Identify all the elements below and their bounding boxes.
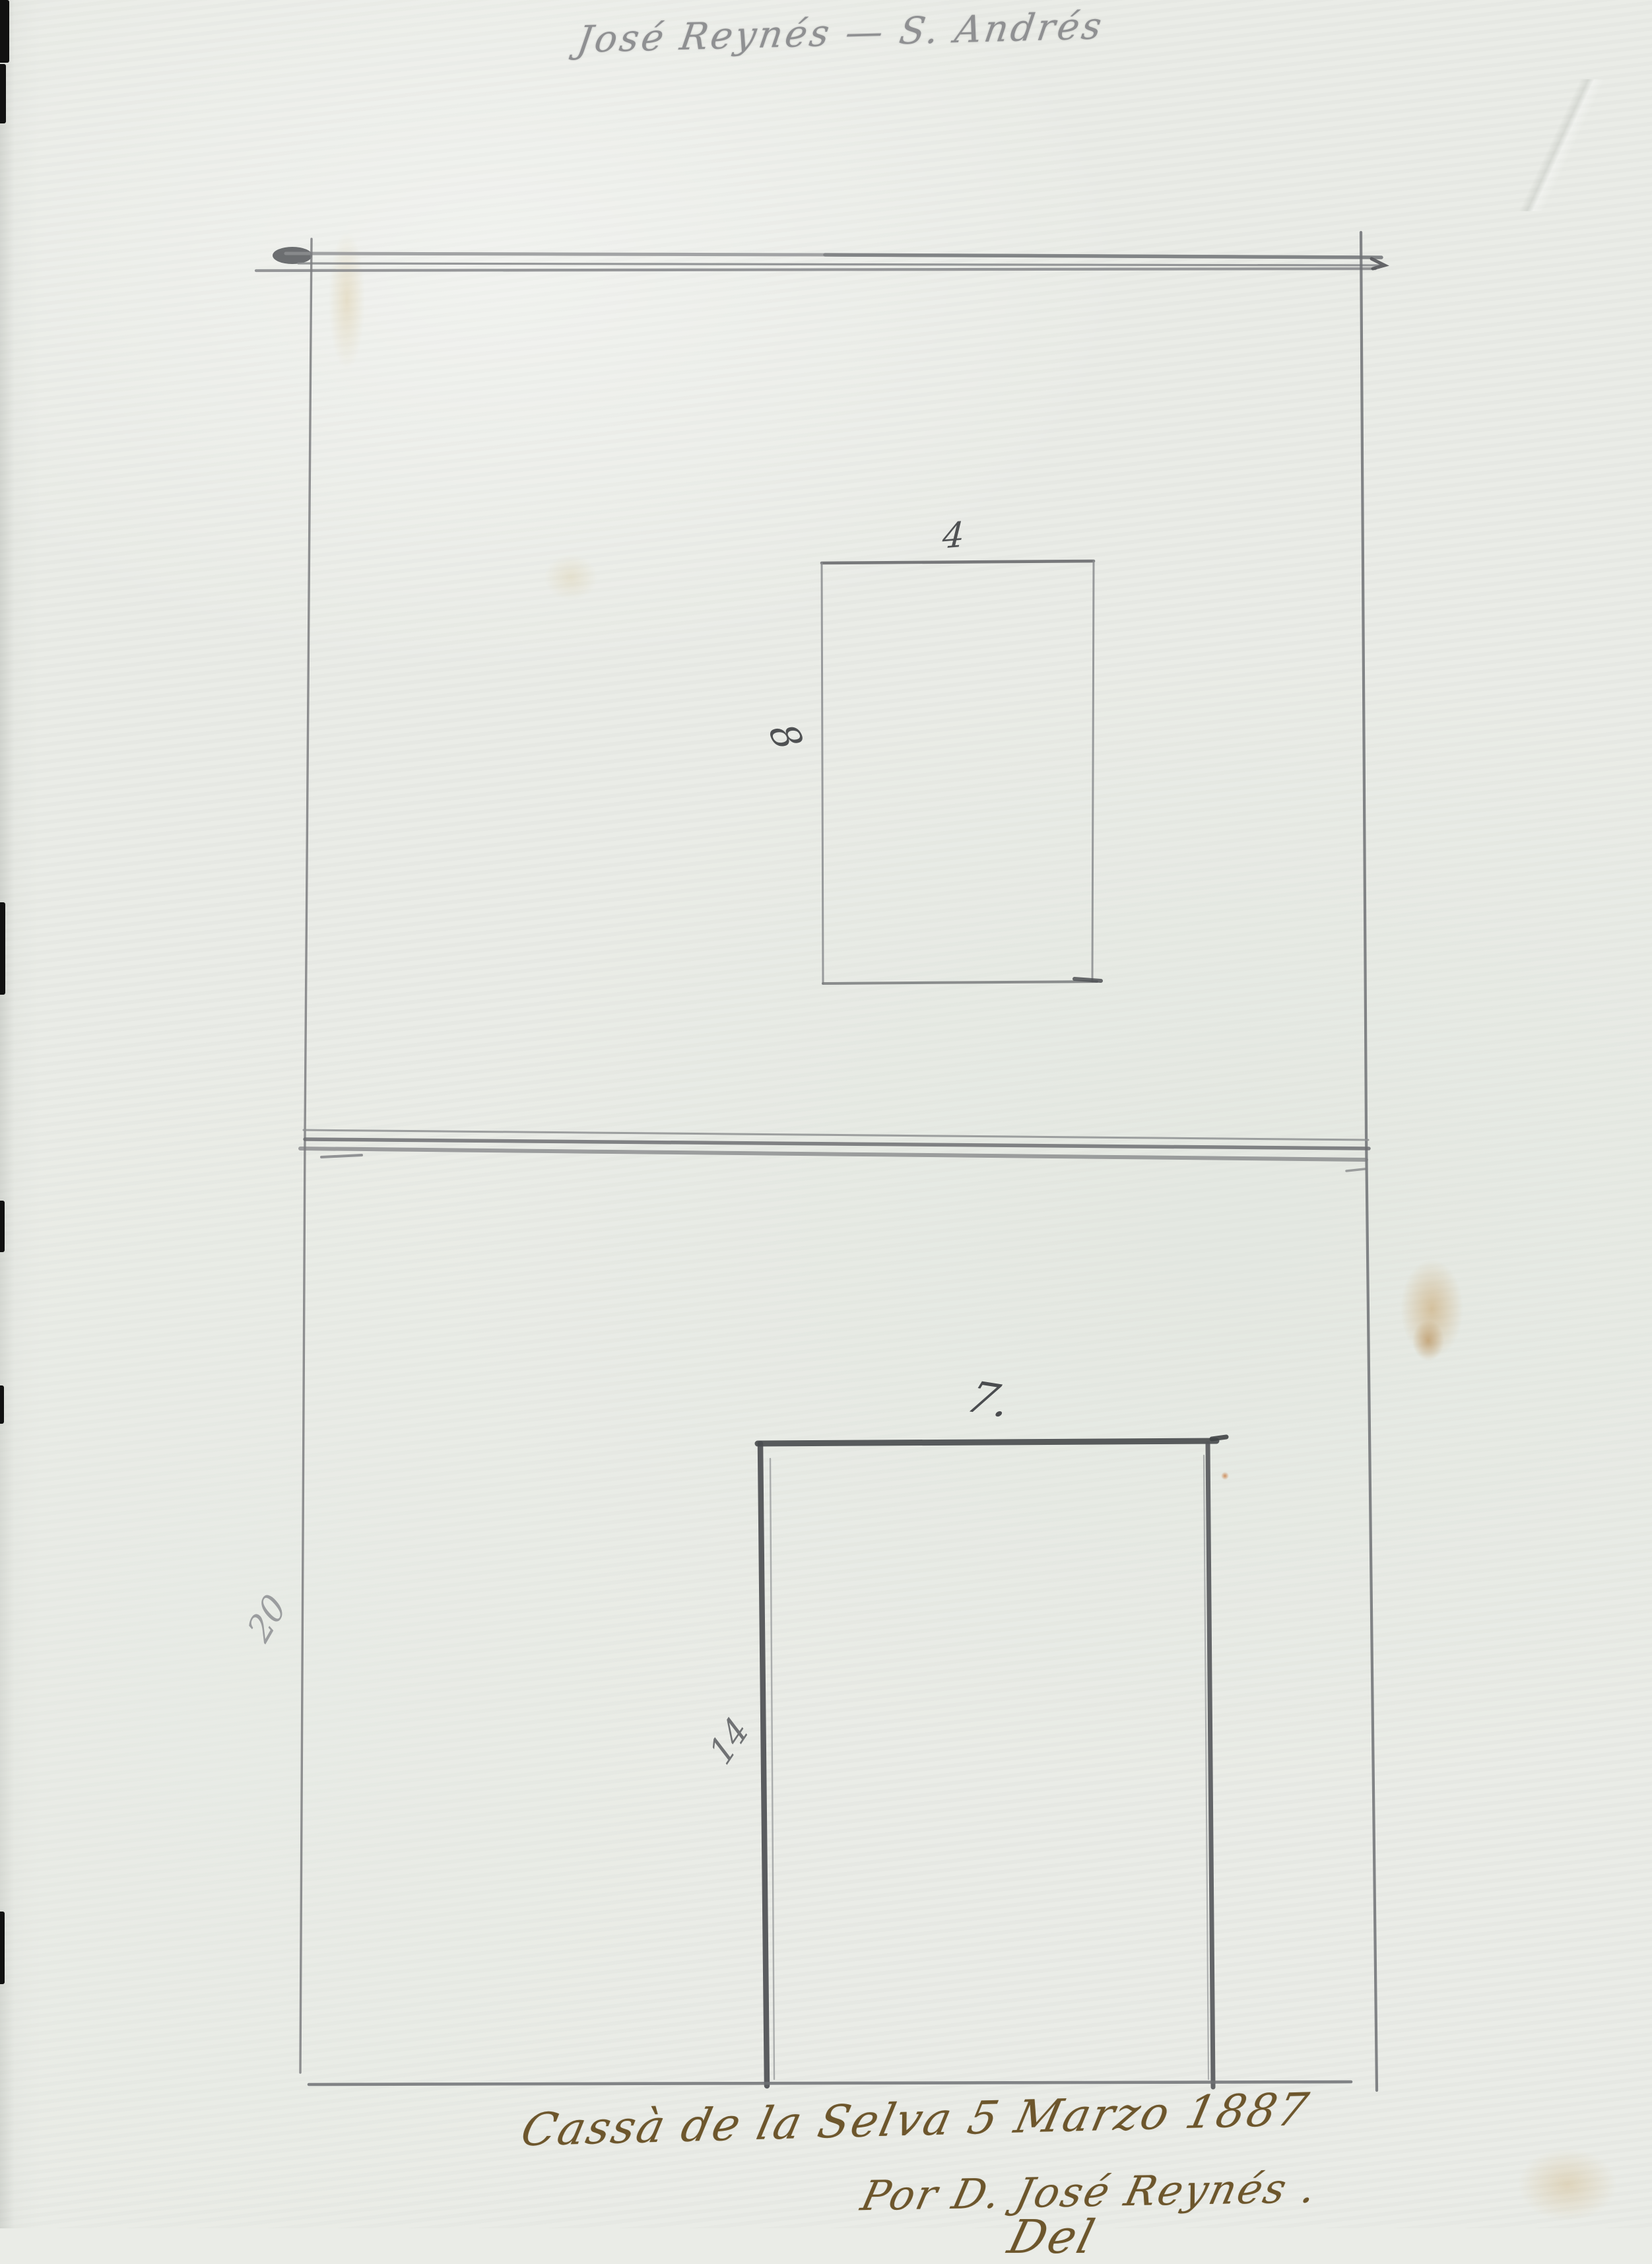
base-line — [309, 2082, 1351, 2084]
upper-opening-width-label: 4 — [941, 515, 965, 556]
bottom-inscription-line3-partial: Del — [1003, 2210, 1102, 2264]
middle-divider-band — [300, 1130, 1369, 1171]
paper-sheet: José Reynés — S. Andrés 4 8 7. 14 20 Cas… — [0, 0, 1652, 2228]
upper-cornice-band — [256, 247, 1385, 271]
upper-opening-rect — [822, 561, 1101, 983]
pencil-linework — [0, 0, 1652, 2228]
left-outer-edge — [300, 239, 312, 2073]
lower-opening-rect — [758, 1437, 1226, 2087]
